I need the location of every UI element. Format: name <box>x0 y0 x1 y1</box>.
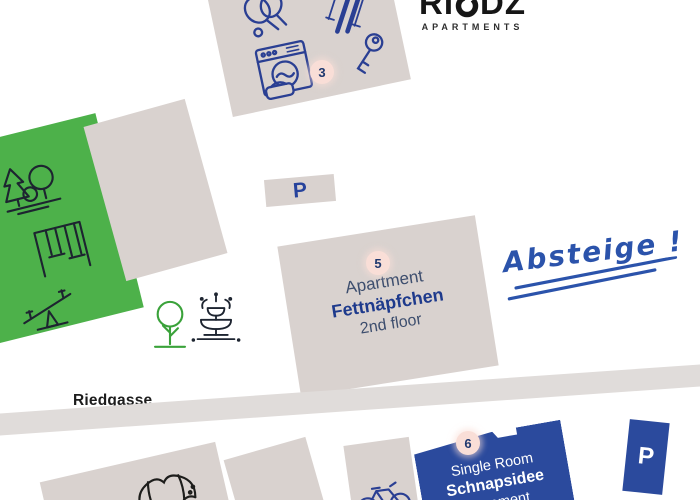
bakery-block <box>40 442 235 500</box>
parking-sign-right: P <box>622 419 669 495</box>
bicycle-icon <box>350 473 415 500</box>
tree-icon <box>148 296 192 350</box>
brand-part1: RI <box>419 0 454 21</box>
parking-letter: P <box>637 442 656 472</box>
bread-icon <box>74 492 138 500</box>
building-block-small <box>224 437 328 500</box>
seesaw-icon <box>13 279 84 339</box>
building-5-block: Apartment Fettnäpfchen 2nd floor <box>277 215 498 396</box>
croissant-icon <box>125 453 204 500</box>
brand-logo: RI DZ APARTMENTS <box>385 0 560 32</box>
badge-5: 5 <box>366 251 390 275</box>
padlock-o-icon <box>455 0 479 18</box>
badge-6: 6 <box>456 431 480 455</box>
brand-subtitle: APARTMENTS <box>385 22 560 32</box>
apartment-map: RI DZ APARTMENTS <box>0 0 700 500</box>
bicycle-block <box>343 437 420 500</box>
key-icon <box>343 27 395 79</box>
building-3-block <box>197 0 411 117</box>
brand-name: RI DZ <box>385 0 560 21</box>
parking-sign-mid: P <box>264 174 336 207</box>
brand-part2: DZ <box>480 0 526 21</box>
swing-icon <box>24 211 99 286</box>
parking-letter: P <box>292 178 308 203</box>
badge-3: 3 <box>310 60 334 84</box>
handwritten-note: Absteige ! <box>501 222 700 326</box>
fountain-icon <box>190 290 242 348</box>
building-6-block: Single Room Schnapsidee basement <box>412 420 577 500</box>
